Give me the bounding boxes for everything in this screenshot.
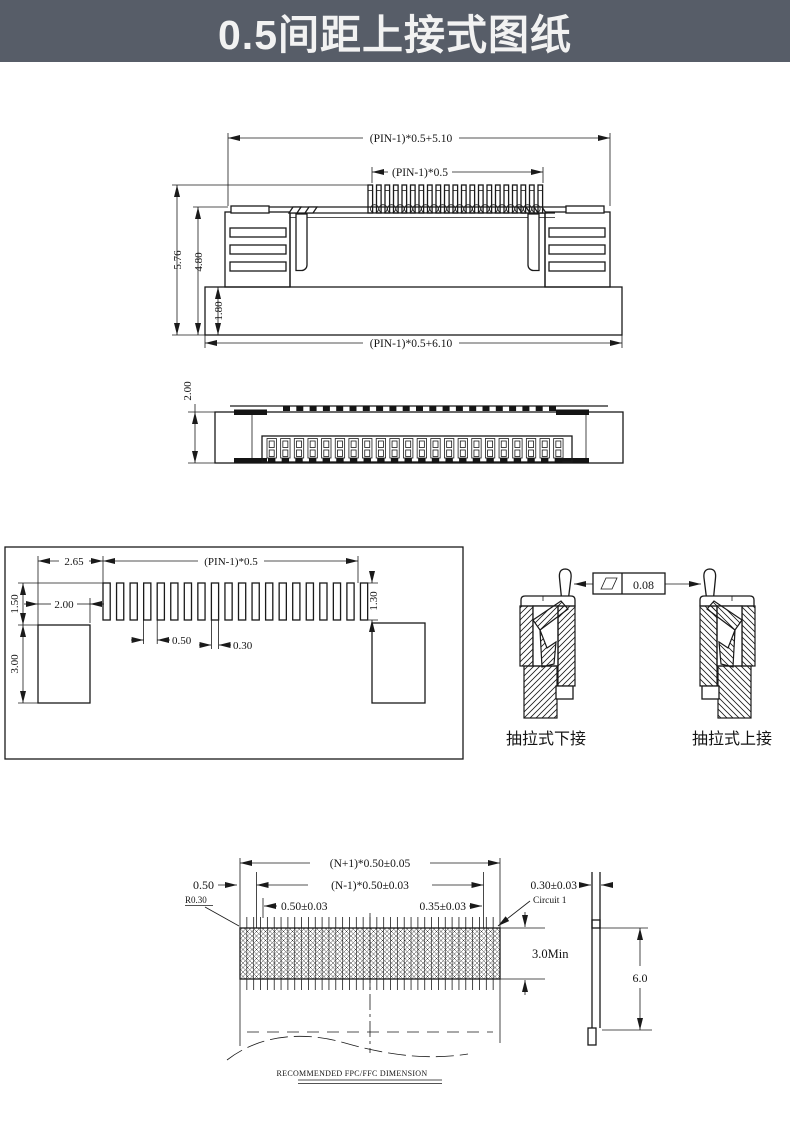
top-dash	[456, 406, 463, 411]
top-dash	[350, 406, 357, 411]
cross-section-lower	[520, 569, 575, 718]
contact-slot	[458, 439, 467, 459]
fpc-label-circuit: Circuit 1	[533, 896, 567, 906]
fp-dim-anchor-height: 3.00	[9, 654, 21, 674]
pin-bump	[396, 205, 404, 213]
drawing-page: 0.5间距上接式图纸 (PIN-1)*0.5+5.10	[0, 0, 790, 1121]
contact-slot	[335, 439, 344, 459]
top-dash	[469, 406, 476, 411]
pin-bump	[498, 205, 506, 213]
top-dash	[283, 406, 290, 411]
top-dim-depth: 2.00	[182, 381, 194, 401]
pin-bump	[481, 205, 489, 213]
fp-dim-pad-width: 0.30	[233, 640, 253, 652]
front-dim-height-body: 4.80	[193, 252, 205, 272]
front-view: (PIN-1)*0.5+5.10 (PIN-1)*0.5 5.76 4.80 1…	[172, 133, 622, 350]
solder-pad	[130, 583, 137, 620]
top-dash	[376, 406, 383, 411]
fpc-caption: RECOMMENDED FPC/FFC DIMENSION	[277, 1069, 428, 1078]
contact-slot	[513, 439, 522, 459]
page-title: 0.5间距上接式图纸	[218, 1, 572, 61]
anchor-pad-left	[38, 625, 90, 703]
top-dash	[296, 406, 303, 411]
contact-slot	[267, 439, 276, 459]
fp-dim-anchor-width: 2.00	[54, 599, 74, 611]
pin-bump	[404, 205, 412, 213]
pin-bump	[421, 205, 429, 213]
fpc-dim-conductor-width: 0.35±0.03	[419, 901, 466, 913]
contact-slot	[322, 439, 331, 459]
fp-dim-pad-pitch: 0.50	[172, 635, 192, 647]
fp-dim-edge-offset: 2.65	[64, 556, 84, 568]
solder-pad	[266, 583, 273, 620]
contact-slot	[526, 439, 535, 459]
footprint-view: 2.65 (PIN-1)*0.5 1.50 3.00 2.00 0.50	[5, 547, 463, 759]
top-dash	[496, 406, 503, 411]
contact-slot	[294, 439, 303, 459]
top-dash	[536, 406, 543, 411]
fpc-dim-conductor-pitch: 0.50±0.03	[281, 901, 328, 913]
top-dash	[509, 406, 516, 411]
pin-bump	[387, 205, 395, 213]
contact-slot	[499, 439, 508, 459]
fpc-dim-total-length: 6.0	[633, 971, 648, 985]
footprint-pads	[103, 583, 368, 620]
front-dim-height-total: 5.76	[172, 250, 184, 270]
contact-slot	[376, 439, 385, 459]
pin-bump	[489, 205, 497, 213]
contact-slot	[281, 439, 290, 459]
solder-pad	[320, 583, 327, 620]
contact-slot	[431, 439, 440, 459]
top-dash	[323, 406, 330, 411]
solder-pad	[225, 583, 232, 620]
top-view-dash-row	[283, 406, 556, 411]
top-dash	[403, 406, 410, 411]
connector-base	[205, 287, 622, 335]
connector-end-block	[225, 206, 317, 287]
solder-pad	[360, 583, 367, 620]
label-upper-contact: 抽拉式上接	[692, 730, 772, 748]
pin-bump	[464, 205, 472, 213]
top-dash	[363, 406, 370, 411]
contact-slot	[485, 439, 494, 459]
solder-pad	[252, 583, 259, 620]
top-dash	[483, 406, 490, 411]
section-views: 0.08 抽拉式下接 抽拉式上接	[506, 569, 772, 748]
solder-pad	[279, 583, 286, 620]
solder-pad	[184, 583, 191, 620]
fpc-dim-total-width: (N+1)*0.50±0.05	[330, 858, 411, 870]
contact-slot	[444, 439, 453, 459]
top-dash	[429, 406, 436, 411]
solder-pad	[333, 583, 340, 620]
pin-bump	[430, 205, 438, 213]
solder-pad	[157, 583, 164, 620]
contact-slot	[417, 439, 426, 459]
contact-slot	[349, 439, 358, 459]
pin-bump	[370, 205, 378, 213]
solder-pad	[306, 583, 313, 620]
footprint-border	[5, 547, 463, 759]
fpc-view: (N+1)*0.50±0.05 (N-1)*0.50±0.03 0.50 R0.…	[185, 858, 652, 1084]
solder-pad	[171, 583, 178, 620]
fp-dim-pad-offset: 1.50	[9, 594, 21, 614]
title-bar: 0.5间距上接式图纸	[0, 0, 790, 62]
pin-bump	[379, 205, 387, 213]
fp-dim-pin-pitch: (PIN-1)*0.5	[204, 556, 258, 568]
pin-bump	[472, 205, 480, 213]
top-dash	[310, 406, 317, 411]
front-dim-pin-pitch: (PIN-1)*0.5	[392, 167, 448, 179]
contact-slot	[554, 439, 563, 459]
pin-bump	[438, 205, 446, 213]
fpc-dim-exposed-length: 3.0Min	[532, 947, 569, 961]
solder-pad	[347, 583, 354, 620]
pin-bump	[455, 205, 463, 213]
fpc-dim-thickness: 0.30±0.03	[530, 880, 577, 892]
solder-pad	[117, 583, 124, 620]
solder-pad	[198, 583, 205, 620]
label-lower-contact: 抽拉式下接	[506, 730, 586, 748]
solder-pad	[103, 583, 110, 620]
top-dash	[416, 406, 423, 411]
pin-bump	[506, 205, 514, 213]
front-dim-height-base: 1.80	[213, 301, 225, 321]
pin-bump	[413, 205, 421, 213]
pin-bump	[447, 205, 455, 213]
top-dash	[549, 406, 556, 411]
solder-pad	[293, 583, 300, 620]
front-dim-overall-top: (PIN-1)*0.5+5.10	[370, 133, 453, 145]
contact-slot	[404, 439, 413, 459]
fpc-dim-conductor-span: (N-1)*0.50±0.03	[331, 880, 409, 892]
fpc-dim-corner-radius: R0.30	[185, 895, 207, 905]
contact-slot	[363, 439, 372, 459]
top-view: 2.00	[182, 381, 623, 464]
contact-slot	[308, 439, 317, 459]
contact-slot	[390, 439, 399, 459]
solder-pad	[144, 583, 151, 620]
top-dash	[443, 406, 450, 411]
fpc-dim-end-margin: 0.50	[193, 878, 214, 892]
top-dash	[522, 406, 529, 411]
contact-pins-row	[368, 185, 543, 213]
technical-drawing: (PIN-1)*0.5+5.10 (PIN-1)*0.5 5.76 4.80 1…	[0, 62, 790, 1121]
contact-slot	[472, 439, 481, 459]
top-dash	[336, 406, 343, 411]
solder-pad	[239, 583, 246, 620]
tolerance-value: 0.08	[633, 578, 654, 592]
fp-dim-pad-length: 1.30	[368, 591, 380, 611]
top-view-contacts	[267, 439, 563, 464]
contact-slot	[540, 439, 549, 459]
solder-pad	[211, 583, 218, 620]
front-dim-overall-bottom: (PIN-1)*0.5+6.10	[370, 338, 453, 350]
top-dash	[389, 406, 396, 411]
anchor-pad-right	[372, 623, 425, 703]
